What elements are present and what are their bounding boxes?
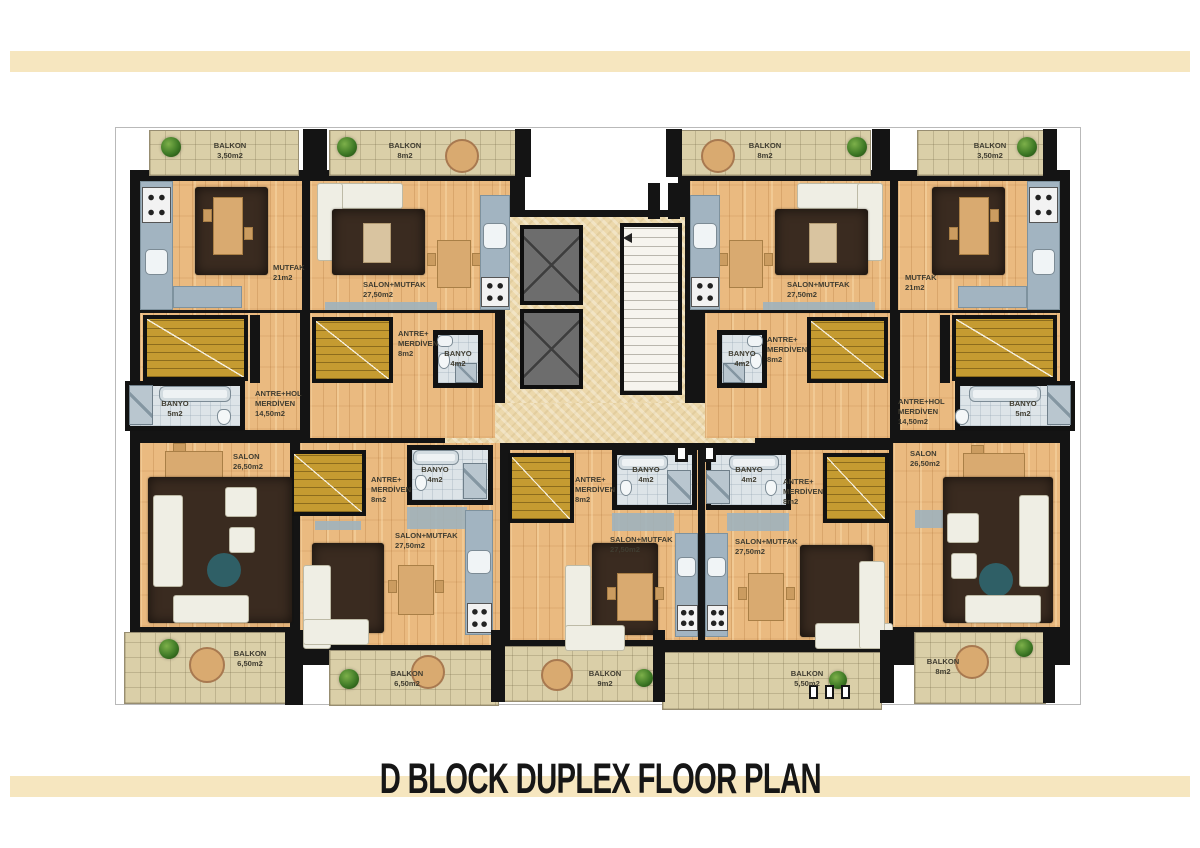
stairs-antre-bc-left — [508, 453, 574, 523]
duct-shaft — [703, 445, 716, 462]
top-accent-bar — [10, 51, 1190, 72]
wall-segment — [668, 183, 680, 219]
stove — [677, 605, 698, 631]
plant — [847, 137, 867, 157]
room-label: BALKON3,50m2 — [960, 141, 1020, 161]
sofa — [303, 619, 369, 645]
dining-table — [729, 240, 763, 288]
chair — [388, 580, 397, 593]
chair — [719, 253, 728, 266]
page-title: D BLOCK DUPLEX FLOOR PLAN — [379, 758, 820, 801]
stairs-antre-tl — [312, 317, 393, 383]
room-label: ANTRE+ MERDİVEN8m2 — [575, 475, 615, 505]
elevator-2 — [520, 309, 583, 389]
bath-sink — [747, 335, 763, 347]
armchair — [947, 513, 979, 543]
room-label: SALON+MUTFAK27,50m2 — [735, 537, 798, 557]
balcony-bottom-55 — [663, 653, 881, 709]
stairs-antre-bc-right — [823, 453, 889, 523]
room-label: SALON+MUTFAK27,50m2 — [363, 280, 426, 300]
threshold — [407, 507, 467, 529]
stairs-antre-tr — [807, 317, 888, 383]
floor-plan: BALKON3,50m2 BALKON8m2 BALKON8m2 BALKON3… — [115, 125, 1085, 710]
stairs-hall-tl — [143, 315, 248, 381]
threshold — [763, 302, 875, 310]
room-label: MUTFAK21m2 — [273, 263, 305, 283]
dining-table — [617, 573, 653, 621]
stove — [481, 277, 509, 307]
chair — [971, 445, 984, 454]
plant — [1017, 137, 1037, 157]
chair — [435, 580, 444, 593]
page: { "title": "D BLOCK DUPLEX FLOOR PLAN", … — [0, 0, 1200, 848]
room-label: ANTRE+ MERDİVEN8m2 — [783, 477, 823, 507]
bath-sink — [437, 335, 453, 347]
room-label: BALKON9m2 — [575, 669, 635, 689]
title-row: D BLOCK DUPLEX FLOOR PLAN — [0, 758, 1200, 801]
wall-segment — [303, 129, 327, 177]
armchair — [951, 553, 977, 579]
wall-segment — [515, 129, 531, 177]
room-label: ANTRE+ MERDİVEN8m2 — [398, 329, 438, 359]
room-label: BALKON3,50m2 — [200, 141, 260, 161]
kitchen-sink — [707, 557, 726, 577]
wall-segment — [1043, 630, 1055, 703]
threshold — [612, 513, 674, 531]
armchair — [229, 527, 255, 553]
kitchen-sink — [693, 223, 717, 249]
plant — [339, 669, 359, 689]
wall-segment — [880, 630, 894, 703]
chair — [244, 227, 253, 240]
armchair — [225, 487, 257, 517]
kitchen-sink — [677, 557, 696, 577]
dining-table — [398, 565, 434, 615]
coffee-table — [809, 223, 837, 263]
plant — [161, 137, 181, 157]
shower — [463, 463, 487, 499]
stove — [467, 603, 492, 633]
room-label: SALON+MUTFAK27,50m2 — [787, 280, 850, 300]
room-label: MUTFAK21m2 — [905, 273, 937, 293]
dining-table — [437, 240, 471, 288]
kitchen-counter — [173, 286, 242, 308]
plant — [159, 639, 179, 659]
plant — [1015, 639, 1033, 657]
chair — [173, 443, 186, 452]
room-label: ANTRE+HOL MERDİVEN14,50m2 — [898, 397, 945, 427]
kitchen-sink — [145, 249, 168, 275]
sofa — [565, 625, 625, 651]
room-label: SALON26,50m2 — [910, 449, 940, 469]
duct-shaft — [675, 445, 688, 462]
sofa — [1019, 495, 1049, 587]
room-label: BALKON8m2 — [375, 141, 435, 161]
room-label: BANYO4m2 — [409, 465, 461, 485]
room-label: SALON26,50m2 — [233, 452, 263, 472]
elevator-1 — [520, 225, 583, 305]
wall-segment — [250, 315, 260, 383]
room-label: BANYO4m2 — [620, 465, 672, 485]
wall-segment — [872, 129, 890, 177]
dining-table — [959, 197, 989, 255]
kitchen-sink — [1032, 249, 1055, 275]
chair — [738, 587, 747, 600]
chair — [203, 209, 212, 222]
threshold — [325, 302, 437, 310]
sofa — [173, 595, 249, 623]
kitchen-sink — [483, 223, 507, 249]
plant — [635, 669, 653, 687]
stairs-antre-bl — [290, 450, 366, 516]
stair-direction-arrow — [623, 233, 632, 243]
kitchen-counter — [958, 286, 1027, 308]
room-label: BANYO4m2 — [435, 349, 481, 369]
chair — [764, 253, 773, 266]
wall-segment — [1043, 129, 1057, 177]
threshold — [315, 521, 361, 530]
room-label: BALKON5,50m2 — [777, 669, 837, 689]
balcony-table — [541, 659, 573, 691]
room-label: BALKON8m2 — [735, 141, 795, 161]
chair — [655, 587, 664, 600]
toilet — [955, 409, 969, 425]
room-label: SALON+MUTFAK27,50m2 — [610, 535, 673, 555]
balcony-table — [445, 139, 479, 173]
toilet — [217, 409, 231, 425]
balcony-table — [701, 139, 735, 173]
stove — [142, 187, 171, 223]
room-label: BALKON8m2 — [913, 657, 973, 677]
kitchen-sink — [467, 550, 491, 574]
threshold — [727, 513, 789, 531]
room-label: ANTRE+ MERDİVEN8m2 — [371, 475, 411, 505]
room-label: ANTRE+ MERDİVEN8m2 — [767, 335, 807, 365]
room-label: SALON+MUTFAK27,50m2 — [395, 531, 458, 551]
wall-segment — [666, 129, 682, 177]
plant — [337, 137, 357, 157]
dining-table — [213, 197, 243, 255]
stairs-hall-tr — [952, 315, 1057, 381]
sofa — [153, 495, 183, 587]
wall-segment — [648, 183, 660, 219]
coffee-table-round — [207, 553, 241, 587]
sofa — [965, 595, 1041, 623]
room-label: BALKON6,50m2 — [377, 669, 437, 689]
bathtub — [413, 450, 459, 465]
chair — [990, 209, 999, 222]
room-label: BALKON6,50m2 — [220, 649, 280, 669]
coffee-table — [363, 223, 391, 263]
wall-segment — [653, 630, 665, 702]
chair — [607, 587, 616, 600]
balustrade-post — [841, 685, 850, 699]
chair — [427, 253, 436, 266]
room-label: BANYO5m2 — [145, 399, 205, 419]
stove — [707, 605, 728, 631]
dining-table — [748, 573, 784, 621]
stove — [691, 277, 719, 307]
room-label: BANYO5m2 — [993, 399, 1053, 419]
stove — [1029, 187, 1058, 223]
coffee-table-round — [979, 563, 1013, 597]
wall-segment — [491, 630, 505, 702]
room-label: ANTRE+HOL MERDİVEN14,50m2 — [255, 389, 302, 419]
common-staircase — [620, 223, 682, 395]
wall-segment — [285, 630, 303, 705]
wall-segment — [940, 315, 950, 383]
room-label: BANYO4m2 — [723, 465, 775, 485]
chair — [949, 227, 958, 240]
room-label: BANYO4m2 — [719, 349, 765, 369]
chair — [786, 587, 795, 600]
